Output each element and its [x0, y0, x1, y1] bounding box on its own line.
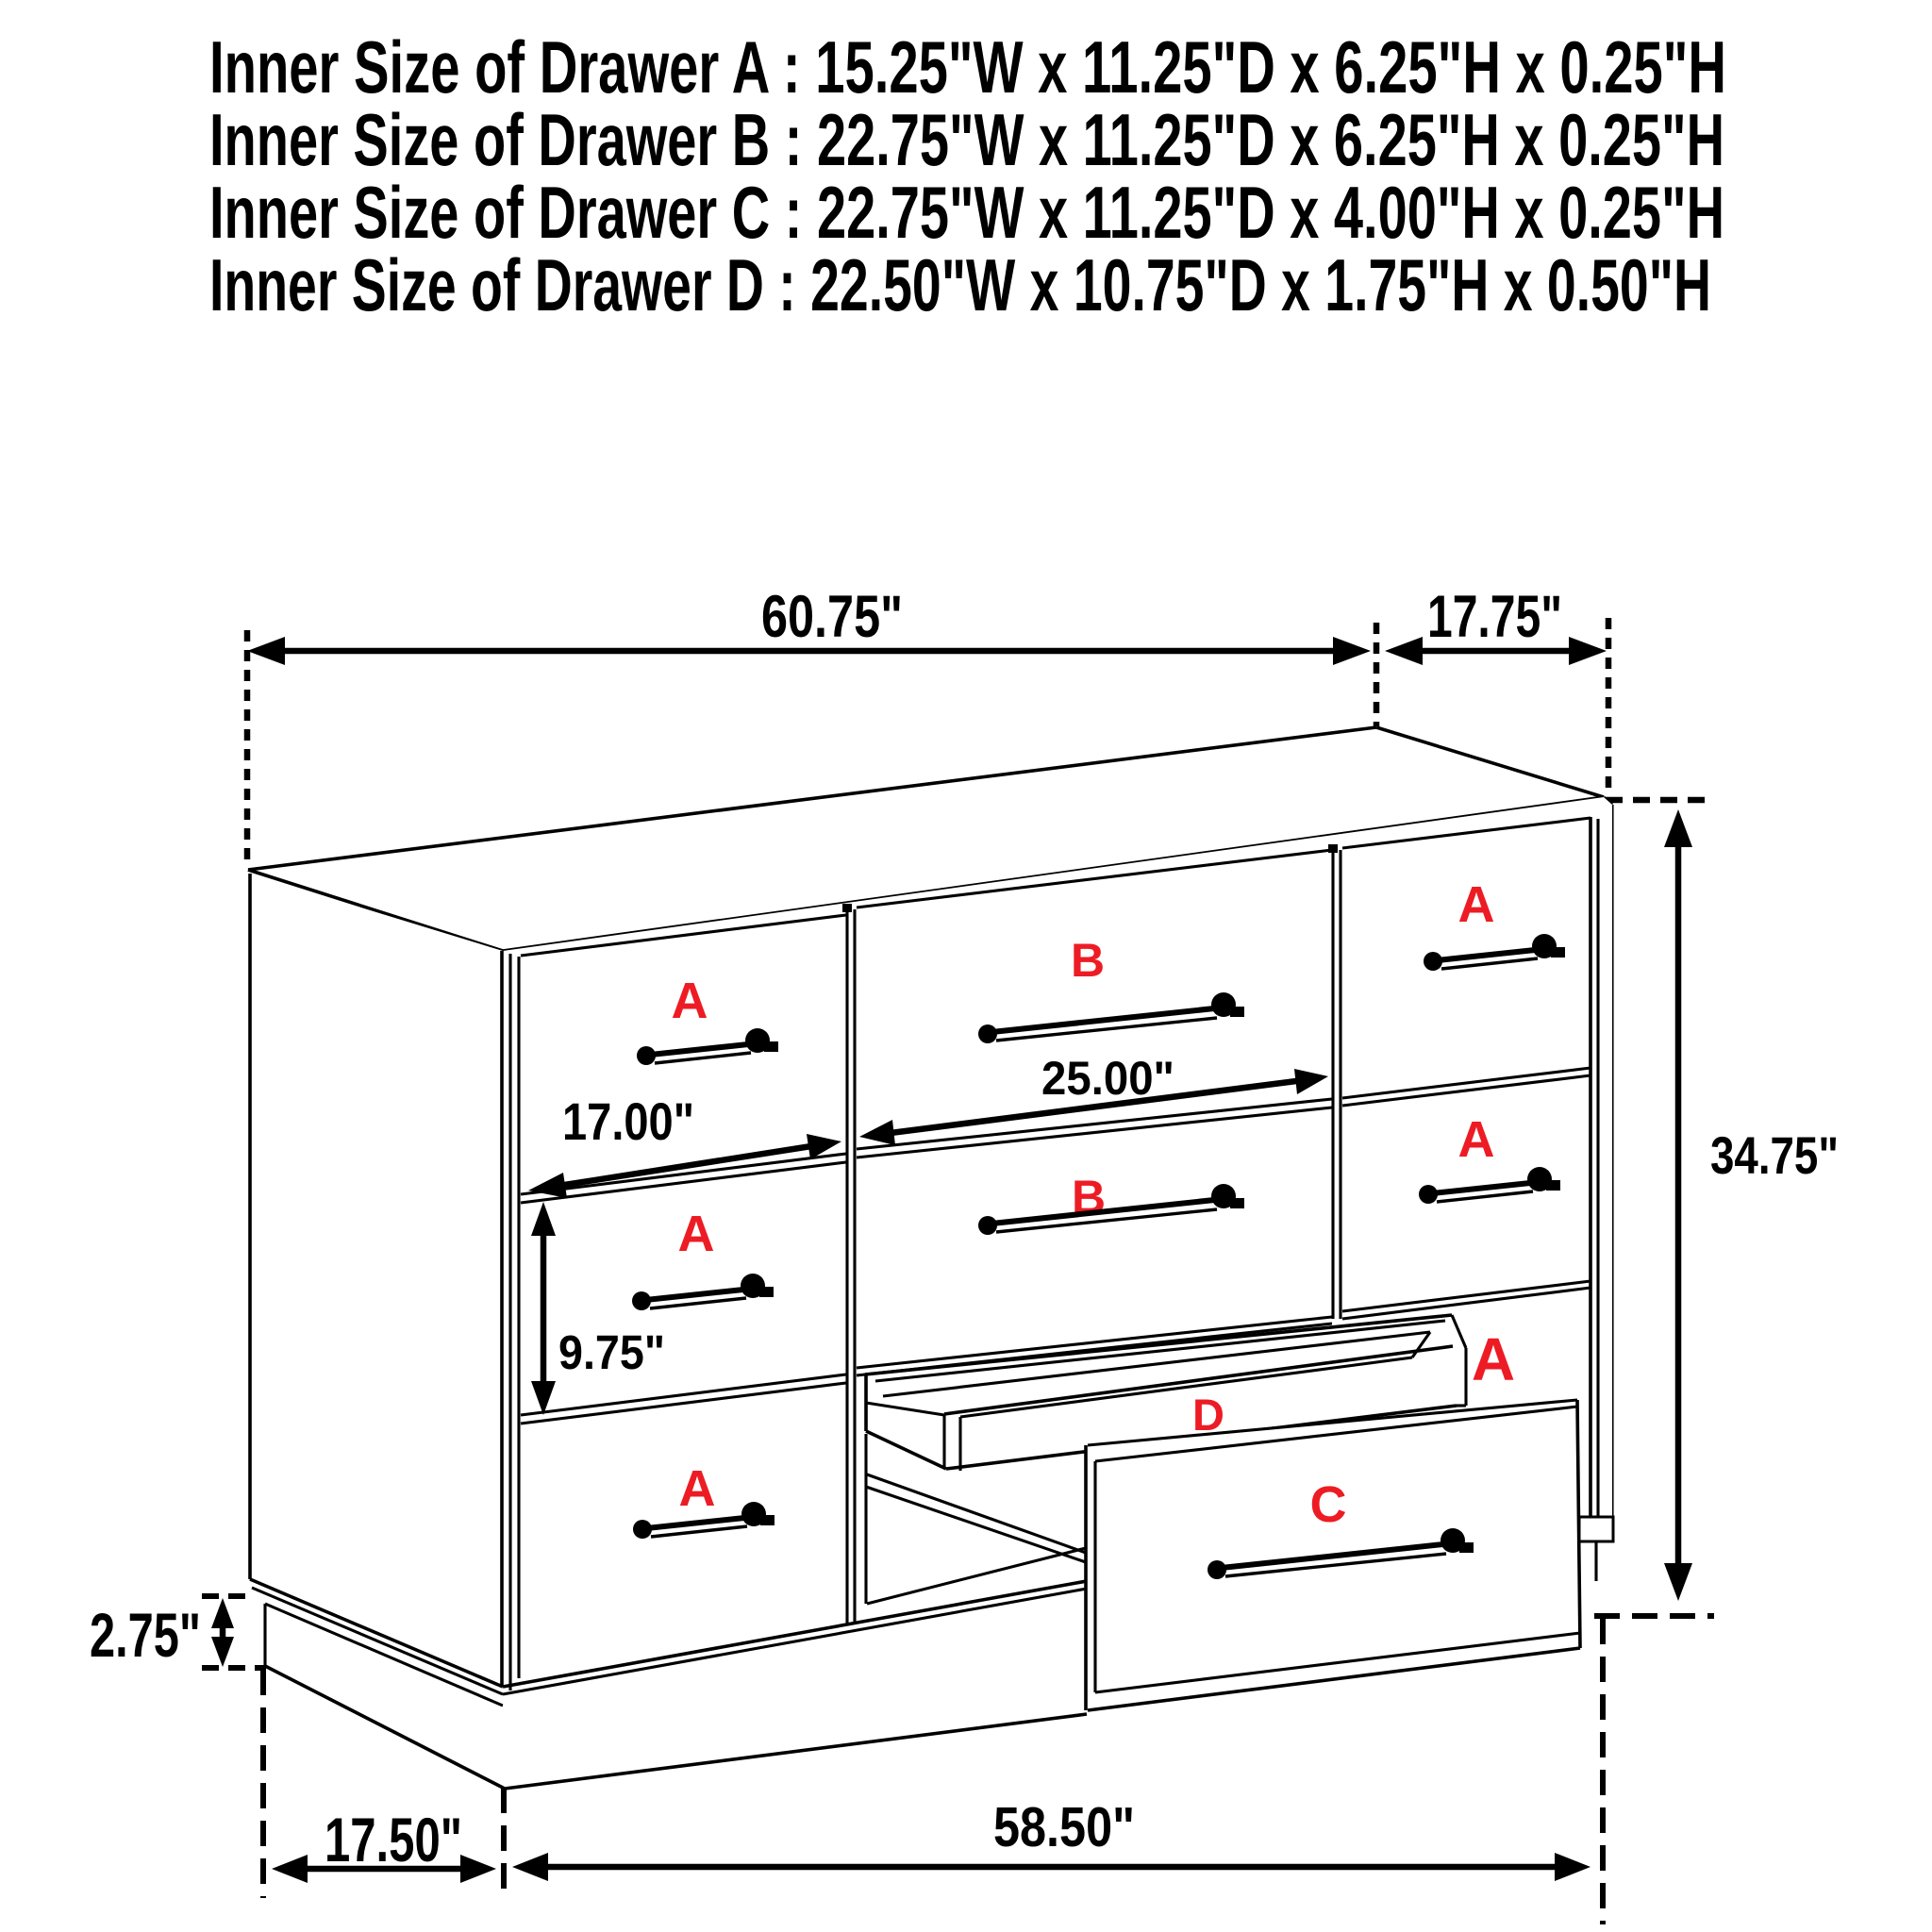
svg-text:A: A: [679, 1460, 716, 1517]
svg-text:A: A: [678, 1206, 715, 1262]
svg-text:A: A: [672, 973, 708, 1029]
svg-text:D: D: [1192, 1390, 1224, 1440]
svg-text:A: A: [1458, 1111, 1495, 1168]
svg-text:Inner Size of Drawer A : 15.25: Inner Size of Drawer A : 15.25"W x 11.25…: [209, 25, 1726, 108]
svg-text:Inner Size of Drawer C : 22.75: Inner Size of Drawer C : 22.75"W x 11.25…: [209, 171, 1724, 254]
svg-text:17.75": 17.75": [1427, 584, 1562, 650]
svg-text:17.00": 17.00": [562, 1091, 694, 1151]
svg-text:B: B: [1071, 934, 1105, 987]
svg-text:34.75": 34.75": [1710, 1125, 1839, 1185]
svg-text:A: A: [1458, 876, 1495, 933]
svg-text:60.75": 60.75": [761, 584, 903, 650]
svg-text:17.50": 17.50": [325, 1805, 462, 1874]
svg-text:Inner Size of Drawer D : 22.5: Inner Size of Drawer D : 22.50"W x 10.75…: [209, 243, 1711, 326]
svg-text:Inner Size of Drawer B : 22.75: Inner Size of Drawer B : 22.75"W x 11.25…: [209, 98, 1724, 181]
svg-text:9.75": 9.75": [558, 1325, 665, 1379]
svg-text:C: C: [1310, 1476, 1347, 1533]
svg-text:2.75": 2.75": [90, 1600, 201, 1670]
svg-text:58.50": 58.50": [993, 1796, 1135, 1858]
svg-text:A: A: [1472, 1325, 1515, 1393]
